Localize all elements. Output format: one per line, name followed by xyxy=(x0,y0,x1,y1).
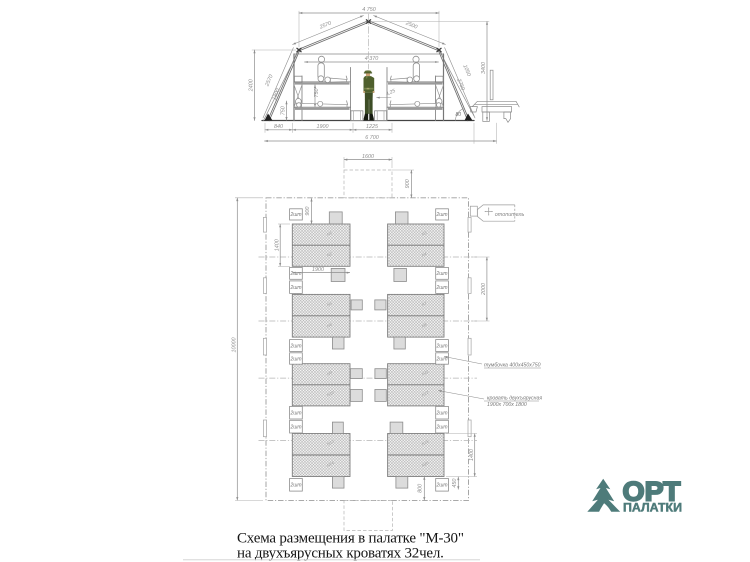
svg-text:1400: 1400 xyxy=(274,239,280,251)
svg-text:2шт: 2шт xyxy=(435,271,447,277)
svg-text:1050: 1050 xyxy=(461,64,471,77)
svg-text:2шт: 2шт xyxy=(289,483,301,489)
svg-text:6 700: 6 700 xyxy=(365,135,379,141)
svg-text:840: 840 xyxy=(274,124,283,130)
svg-text:2570: 2570 xyxy=(264,74,275,88)
svg-text:2шт: 2шт xyxy=(289,356,301,362)
svg-text:2шт: 2шт xyxy=(289,343,301,349)
svg-text:2570: 2570 xyxy=(318,21,332,32)
svg-text:4 750: 4 750 xyxy=(362,7,376,13)
svg-text:3400: 3400 xyxy=(481,62,487,74)
svg-text:2шт: 2шт xyxy=(289,285,301,291)
svg-text:2шт: 2шт xyxy=(289,411,301,417)
svg-text:1900: 1900 xyxy=(317,124,329,130)
svg-text:2400: 2400 xyxy=(249,79,255,92)
svg-text:2шт: 2шт xyxy=(435,424,447,430)
svg-text:80: 80 xyxy=(456,112,462,118)
svg-text:1225: 1225 xyxy=(366,124,379,130)
svg-text:Схема размещения в палатке "М-: Схема размещения в палатке "М-30" xyxy=(237,531,464,547)
svg-text:900: 900 xyxy=(305,207,311,216)
svg-text:10000: 10000 xyxy=(232,338,238,353)
svg-text:2шт: 2шт xyxy=(289,212,301,218)
svg-text:4 370: 4 370 xyxy=(365,56,379,62)
svg-text:750: 750 xyxy=(314,89,320,98)
svg-text:2шт: 2шт xyxy=(435,343,447,349)
svg-text:1400: 1400 xyxy=(469,449,475,461)
svg-text:на двухъярусных кроватях 32чел: на двухъярусных кроватях 32чел. xyxy=(237,545,444,561)
svg-text:450: 450 xyxy=(452,479,458,488)
svg-text:кровать двухъярусная: кровать двухъярусная xyxy=(487,396,542,402)
svg-text:800: 800 xyxy=(418,484,424,493)
svg-text:750: 750 xyxy=(280,106,286,115)
svg-text:ПАЛАТКИ: ПАЛАТКИ xyxy=(623,501,682,514)
svg-text:2шт: 2шт xyxy=(435,411,447,417)
svg-text:1900: 1900 xyxy=(312,267,324,273)
svg-text:2000: 2000 xyxy=(481,283,487,296)
svg-text:1900х 700х 1800: 1900х 700х 1800 xyxy=(487,402,527,408)
svg-text:2шт: 2шт xyxy=(435,212,447,218)
svg-text:отопитель: отопитель xyxy=(495,212,525,218)
svg-text:1600: 1600 xyxy=(362,154,374,160)
svg-text:2шт: 2шт xyxy=(289,424,301,430)
svg-text:2шт: 2шт xyxy=(435,483,447,489)
svg-text:900: 900 xyxy=(405,179,411,188)
svg-text:2шт: 2шт xyxy=(435,285,447,291)
svg-text:тумбочка 400х450х750: тумбочка 400х450х750 xyxy=(484,363,541,369)
